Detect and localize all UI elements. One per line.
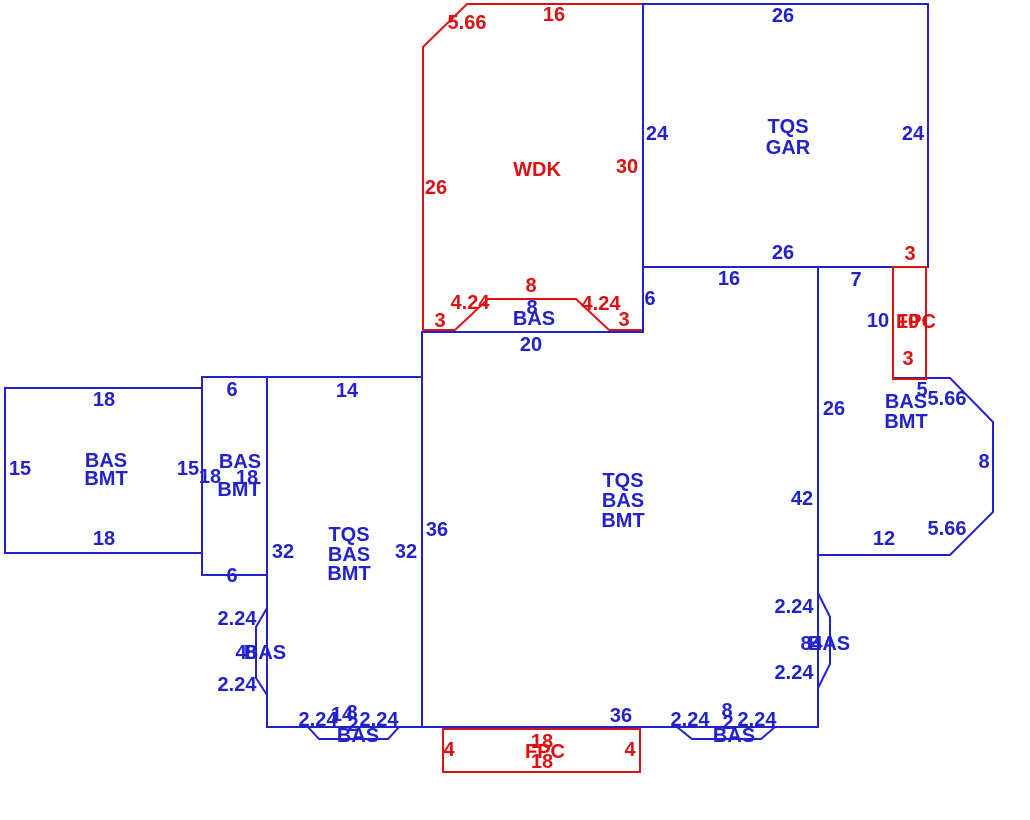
gar-dim-24-left: 24	[646, 124, 668, 144]
left-area-label-line2: BMT	[84, 469, 127, 489]
right-dim-10: 10	[867, 311, 889, 331]
wdk-dim-30: 30	[616, 157, 638, 177]
main-area-label-line1: TQS	[602, 471, 643, 491]
mid-area-label-line1: TQS	[328, 525, 369, 545]
main-dim-42: 42	[791, 489, 813, 509]
fpcright-dim-3-top: 3	[904, 244, 915, 264]
rightbay-area-label: BAS	[808, 634, 850, 654]
fpcbottom-dim-4-left: 4	[443, 740, 454, 760]
main-area-label-line3: BMT	[601, 511, 644, 531]
right-dim-5-66-top: 5.66	[928, 389, 967, 409]
rightbay-dim-2-24-top: 2.24	[775, 597, 814, 617]
right-dim-26: 26	[823, 399, 845, 419]
narrow-area-label-line2: BMT	[217, 480, 260, 500]
gar-area-label-line2: GAR	[766, 138, 810, 158]
main-dim-20: 20	[520, 335, 542, 355]
main-dim-16: 16	[718, 269, 740, 289]
topbay-dim-4-24-right: 4.24	[582, 294, 621, 314]
narrow-dim-6-bottom: 6	[226, 566, 237, 586]
right-dim-5-66-bottom: 5.66	[928, 519, 967, 539]
main-dim-36-left: 36	[426, 520, 448, 540]
right-area-label-line1: BAS	[885, 392, 927, 412]
right-dim-12: 12	[873, 529, 895, 549]
main-dim-36-bottom: 36	[610, 706, 632, 726]
wdk-dim-26: 26	[425, 178, 447, 198]
right-area-label-line2: BMT	[884, 412, 927, 432]
left-dim-18-bottom: 18	[93, 529, 115, 549]
wdk-dim-16: 16	[543, 5, 565, 25]
blbay-area-label: BAS	[337, 726, 379, 746]
topbay-area-label: BAS	[513, 309, 555, 329]
leftbay-dim-2-24-bottom: 2.24	[218, 675, 257, 695]
left-dim-15-right: 15	[177, 459, 199, 479]
left-dim-15-left: 15	[9, 459, 31, 479]
sketch-outlines	[0, 0, 1030, 820]
right-dim-8: 8	[978, 452, 989, 472]
mid-dim-32-left: 32	[272, 542, 294, 562]
gar-dim-24-right: 24	[902, 124, 924, 144]
topbay-dim-3-left: 3	[434, 311, 445, 331]
mid-dim-32-right: 32	[395, 542, 417, 562]
narrow-dim-6-top: 6	[226, 380, 237, 400]
fpcright-area-label: FPC	[896, 312, 936, 332]
fpcright-dim-3-bottom: 3	[902, 349, 913, 369]
fpcbottom-dim-18-bottom: 18	[531, 752, 553, 772]
wdk-dim-5-66: 5.66	[448, 13, 487, 33]
leftbay-dim-2-24-top: 2.24	[218, 609, 257, 629]
wdk-area-label: WDK	[513, 160, 561, 180]
left-dim-18-top: 18	[93, 390, 115, 410]
gar-dim-26-bottom: 26	[772, 243, 794, 263]
gar-area-label-line1: TQS	[767, 117, 808, 137]
mid-dim-14: 14	[336, 381, 358, 401]
main-dim-6: 6	[644, 289, 655, 309]
mid-area-label-line3: BMT	[327, 564, 370, 584]
main-dim-7: 7	[850, 270, 861, 290]
floor-plan-sketch: 5.66162630WDK262424TQSGAR2684.244.24338B…	[0, 0, 1030, 820]
mid-area-label-line2: BAS	[328, 545, 370, 565]
fpcbottom-dim-4-right: 4	[624, 740, 635, 760]
gar-dim-26-top: 26	[772, 6, 794, 26]
leftbay-area-label: BAS	[244, 643, 286, 663]
brbay-dim-2-24-left: 2.24	[671, 710, 710, 730]
rightbay-dim-2-24-bottom: 2.24	[775, 663, 814, 683]
topbay-dim-8-red: 8	[525, 276, 536, 296]
topbay-dim-4-24-left: 4.24	[451, 293, 490, 313]
topbay-dim-3-right: 3	[618, 310, 629, 330]
main-area-label-line2: BAS	[602, 491, 644, 511]
brbay-area-label: BAS	[713, 726, 755, 746]
